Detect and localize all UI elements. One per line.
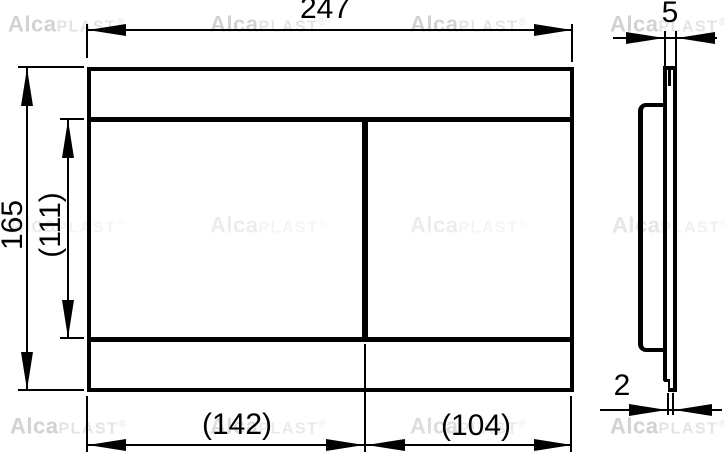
registered-mark: ® xyxy=(720,218,725,229)
registered-mark: ® xyxy=(318,419,325,430)
dimension-line xyxy=(88,29,573,31)
watermark-light-text: PLAST xyxy=(658,420,718,437)
arrowhead-icon xyxy=(367,439,405,451)
side-view-inner-detail-line xyxy=(668,70,671,86)
alcaplast-watermark: AlcaPLAST® xyxy=(410,12,526,38)
side-thickness-dimension-label: 5 xyxy=(640,0,700,28)
arrowhead-icon xyxy=(88,439,126,451)
arrowhead-icon xyxy=(21,352,33,390)
right-section-width-dimension-label: (104) xyxy=(416,411,536,441)
arrowhead-icon xyxy=(62,300,74,338)
watermark-light-text: PLAST xyxy=(660,219,720,236)
watermark-light-text: PLAST xyxy=(58,420,118,437)
registered-mark: ® xyxy=(518,17,525,28)
side-view-bottom-edge-line xyxy=(668,388,677,392)
arrowhead-icon xyxy=(626,32,664,44)
registered-mark: ® xyxy=(118,419,125,430)
extension-line xyxy=(364,344,366,452)
alcaplast-watermark: AlcaPLAST® xyxy=(10,414,126,440)
technical-drawing-canvas: AlcaPLAST® AlcaPLAST® AlcaPLAST® AlcaPLA… xyxy=(0,0,725,453)
watermark-bold-text: Alca xyxy=(10,413,58,438)
front-view-bottom-rail-line xyxy=(87,337,574,342)
arrowhead-icon xyxy=(88,24,126,36)
side-view-front-face-line xyxy=(673,66,677,392)
arrowhead-icon xyxy=(674,404,712,416)
front-view-top-rail-line xyxy=(87,117,574,122)
watermark-bold-text: Alca xyxy=(210,11,258,36)
front-view-button-divider-line xyxy=(362,117,368,342)
extension-line xyxy=(667,393,669,415)
watermark-bold-text: Alca xyxy=(410,11,458,36)
arrowhead-icon xyxy=(62,120,74,158)
bottom-edge-thickness-dimension-label: 2 xyxy=(592,371,652,401)
arrowhead-icon xyxy=(534,24,572,36)
arrowhead-icon xyxy=(326,439,364,451)
registered-mark: ® xyxy=(718,419,725,430)
arrowhead-icon xyxy=(677,32,715,44)
left-section-width-dimension-label: (142) xyxy=(177,410,297,440)
side-view-back-face-line xyxy=(663,66,667,381)
arrowhead-icon xyxy=(21,68,33,106)
arrowhead-icon xyxy=(629,404,667,416)
front-width-dimension-label: 247 xyxy=(265,0,385,24)
alcaplast-watermark: AlcaPLAST® xyxy=(610,414,725,440)
watermark-bold-text: Alca xyxy=(8,11,56,36)
inner-height-dimension-label: (111) xyxy=(36,165,66,285)
alcaplast-watermark: AlcaPLAST® xyxy=(612,213,725,239)
watermark-light-text: PLAST xyxy=(458,18,518,35)
front-view-plate-outline xyxy=(87,67,574,392)
arrowhead-icon xyxy=(534,439,572,451)
side-view-mounting-frame-outline xyxy=(638,103,663,352)
registered-mark: ® xyxy=(718,17,725,28)
front-height-dimension-label: 165 xyxy=(0,175,28,275)
watermark-bold-text: Alca xyxy=(610,413,658,438)
